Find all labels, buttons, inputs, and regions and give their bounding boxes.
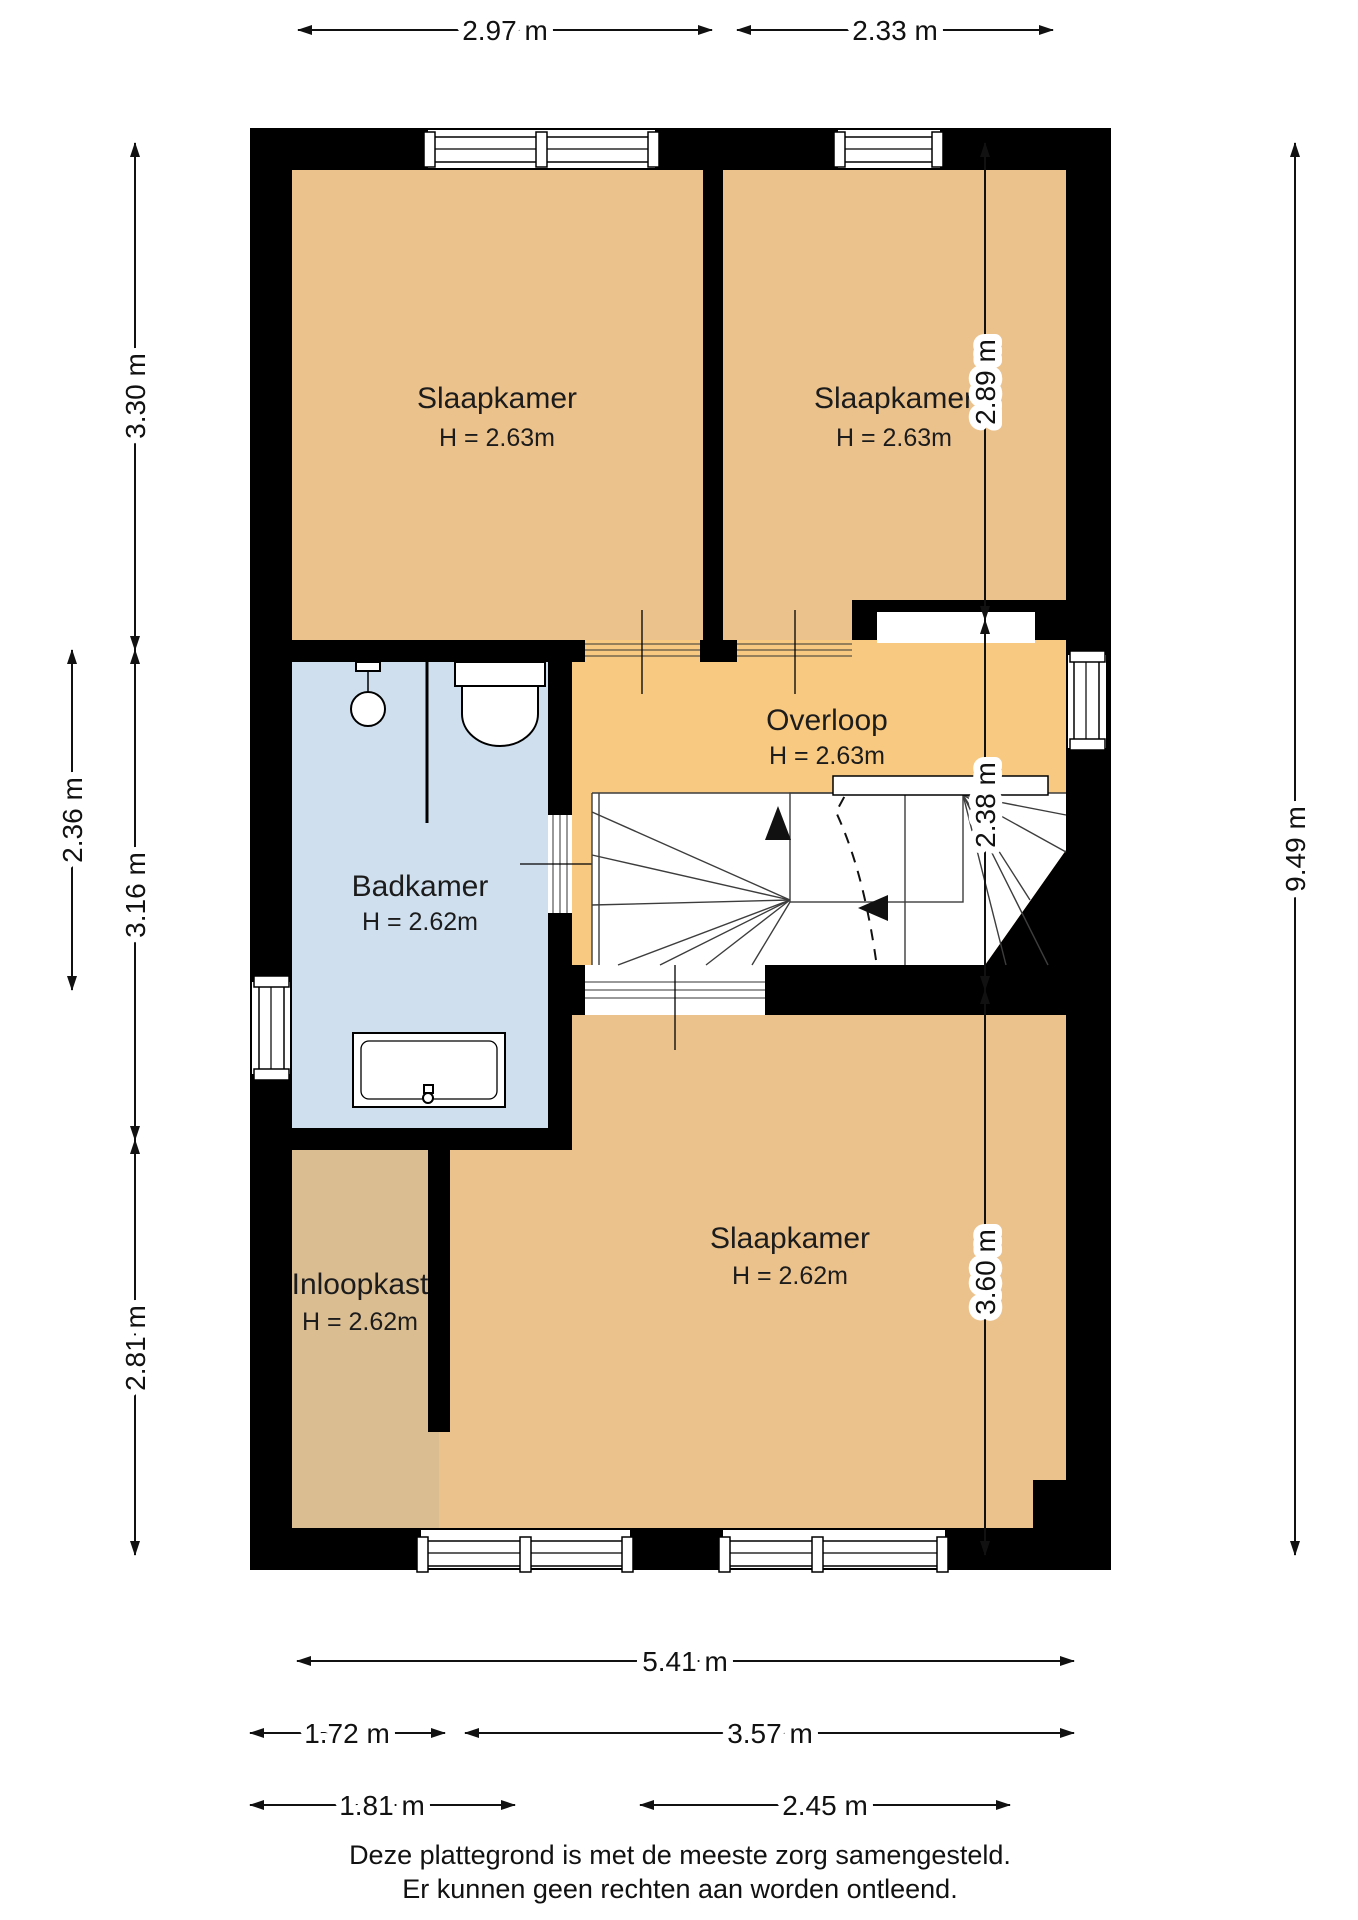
wall-badkamer-south <box>250 1128 572 1150</box>
dim-top-1: 2.97 m <box>298 15 712 46</box>
stair-top-landing <box>833 776 1048 795</box>
svg-text:3.30 m: 3.30 m <box>120 353 151 439</box>
window-bottom-left <box>417 1530 633 1572</box>
label-badkamer: Badkamer <box>352 870 489 903</box>
dim-left-330: 3.30 m <box>120 143 151 650</box>
dim-left-236: 2.36 m <box>57 650 88 990</box>
wall-corner-step <box>1033 1480 1073 1530</box>
label-badkamer-height: H = 2.62m <box>362 908 478 936</box>
footer-line-2: Er kunnen geen rechten aan worden ontlee… <box>402 1874 957 1904</box>
wall-bedroom-badkamer <box>250 640 585 662</box>
svg-text:2.89 m: 2.89 m <box>970 339 1001 425</box>
wall-badkamer-east-upper <box>548 640 572 815</box>
label-bedroom-topleft: Slaapkamer <box>417 382 577 415</box>
label-inloopkast: Inloopkast <box>292 1268 429 1301</box>
wall-inloopkast-east <box>428 1150 450 1432</box>
svg-text:5.41 m: 5.41 m <box>642 1646 728 1677</box>
floorplan-page: Slaapkamer H = 2.63m Slaapkamer H = 2.63… <box>0 0 1358 1920</box>
svg-text:1.72 m: 1.72 m <box>304 1718 390 1749</box>
dim-left-316: 3.16 m <box>120 650 151 1140</box>
label-bedroom-topright: Slaapkamer <box>814 382 974 415</box>
dim-left-281: 2.81 m <box>120 1140 151 1555</box>
svg-text:2.36 m: 2.36 m <box>57 777 88 863</box>
window-overloop-right <box>1068 651 1106 750</box>
window-top-right <box>834 130 943 168</box>
floorplan-canvas: Slaapkamer H = 2.63m Slaapkamer H = 2.63… <box>0 0 1358 1920</box>
svg-text:1.81 m: 1.81 m <box>339 1790 425 1821</box>
toilet-icon <box>455 662 545 746</box>
dim-bottom-181: 1.81 m <box>250 1790 515 1821</box>
label-bedroom-topleft-height: H = 2.63m <box>439 424 555 452</box>
dim-bottom-172: 1.72 m <box>250 1718 445 1749</box>
niche-overloop <box>877 612 1035 643</box>
wall-post-overloop <box>700 640 737 662</box>
dim-bottom-357: 3.57 m <box>465 1718 1074 1749</box>
window-bottom-right <box>719 1530 948 1572</box>
svg-text:3.16 m: 3.16 m <box>120 852 151 938</box>
dim-bottom-541: 5.41 m <box>297 1646 1074 1677</box>
dim-right-949: 9.49 m <box>1280 143 1311 1555</box>
wall-between-top-bedrooms <box>703 170 723 640</box>
floor-bedroom-topleft <box>292 170 703 662</box>
window-top-left <box>424 130 659 168</box>
svg-text:2.33 m: 2.33 m <box>852 15 938 46</box>
svg-text:3.60 m: 3.60 m <box>970 1229 1001 1315</box>
dim-bottom-245: 2.45 m <box>640 1790 1010 1821</box>
wall-stairs-south-stub <box>572 965 585 1015</box>
floor-inloopkast <box>292 1150 439 1528</box>
svg-text:2.38 m: 2.38 m <box>970 762 1001 848</box>
svg-text:2.97 m: 2.97 m <box>462 15 548 46</box>
window-badkamer-left <box>252 976 290 1080</box>
dim-top-2: 2.33 m <box>737 15 1053 46</box>
wall-badkamer-east-lower <box>548 913 572 1150</box>
svg-text:2.45 m: 2.45 m <box>782 1790 868 1821</box>
label-overloop-height: H = 2.63m <box>769 742 885 770</box>
label-bedroom-bottom: Slaapkamer <box>710 1222 870 1255</box>
footer-disclaimer: Deze plattegrond is met de meeste zorg s… <box>349 1840 1011 1904</box>
label-overloop: Overloop <box>766 704 888 737</box>
label-bedroom-bottom-height: H = 2.62m <box>732 1262 848 1290</box>
svg-text:3.57 m: 3.57 m <box>727 1718 813 1749</box>
bathtub-icon <box>353 1033 505 1107</box>
wall-stairs-south <box>765 965 1066 1015</box>
label-bedroom-topright-height: H = 2.63m <box>836 424 952 452</box>
svg-text:2.81 m: 2.81 m <box>120 1305 151 1391</box>
svg-text:9.49 m: 9.49 m <box>1280 806 1311 892</box>
footer-line-1: Deze plattegrond is met de meeste zorg s… <box>349 1840 1011 1870</box>
label-inloopkast-height: H = 2.62m <box>302 1308 418 1336</box>
